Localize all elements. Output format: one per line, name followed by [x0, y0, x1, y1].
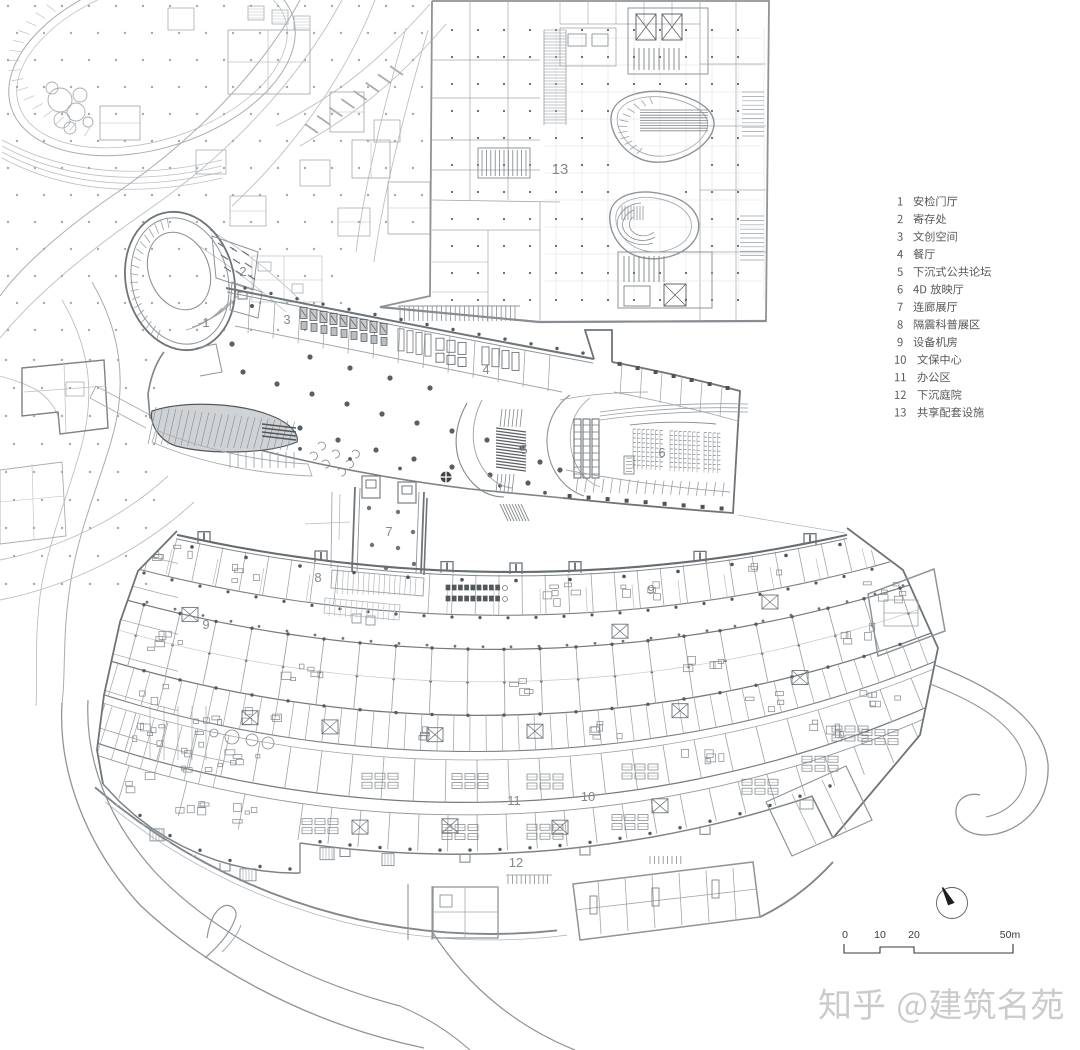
svg-text:50m: 50m: [1000, 929, 1021, 941]
svg-text:1: 1: [202, 315, 209, 330]
svg-text:6: 6: [658, 445, 665, 460]
svg-text:8: 8: [314, 570, 321, 585]
svg-text:3: 3: [283, 312, 290, 327]
svg-text:5: 5: [520, 442, 527, 457]
svg-text:11: 11: [507, 793, 521, 808]
svg-text:4: 4: [482, 362, 489, 377]
svg-text:12: 12: [509, 855, 523, 870]
svg-text:7: 7: [385, 524, 392, 539]
svg-text:0: 0: [842, 929, 848, 941]
svg-text:13: 13: [552, 161, 569, 178]
svg-text:10: 10: [874, 929, 886, 941]
svg-text:2: 2: [239, 264, 246, 279]
svg-text:9: 9: [202, 617, 209, 632]
svg-text:9: 9: [647, 582, 654, 597]
svg-text:10: 10: [581, 789, 595, 804]
svg-text:20: 20: [908, 929, 920, 941]
